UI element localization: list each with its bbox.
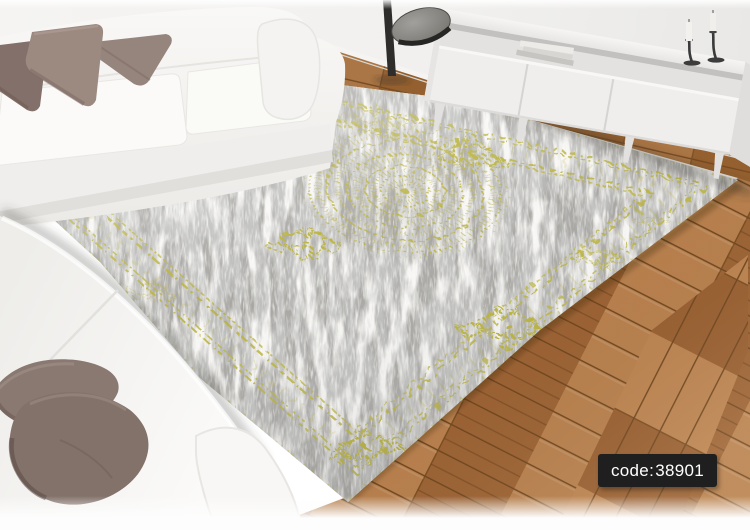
floor-lamp-shadow — [374, 75, 410, 85]
code-label: code: — [611, 461, 654, 481]
sofa-arm — [257, 19, 319, 119]
room-scene — [0, 0, 750, 530]
top-fade — [0, 0, 750, 9]
bottom-fade — [0, 496, 750, 530]
candle — [686, 22, 692, 41]
product-photo: code: 38901 — [0, 0, 750, 530]
product-code-badge: code: 38901 — [598, 454, 717, 487]
code-value: 38901 — [655, 461, 704, 481]
candle — [710, 13, 716, 31]
